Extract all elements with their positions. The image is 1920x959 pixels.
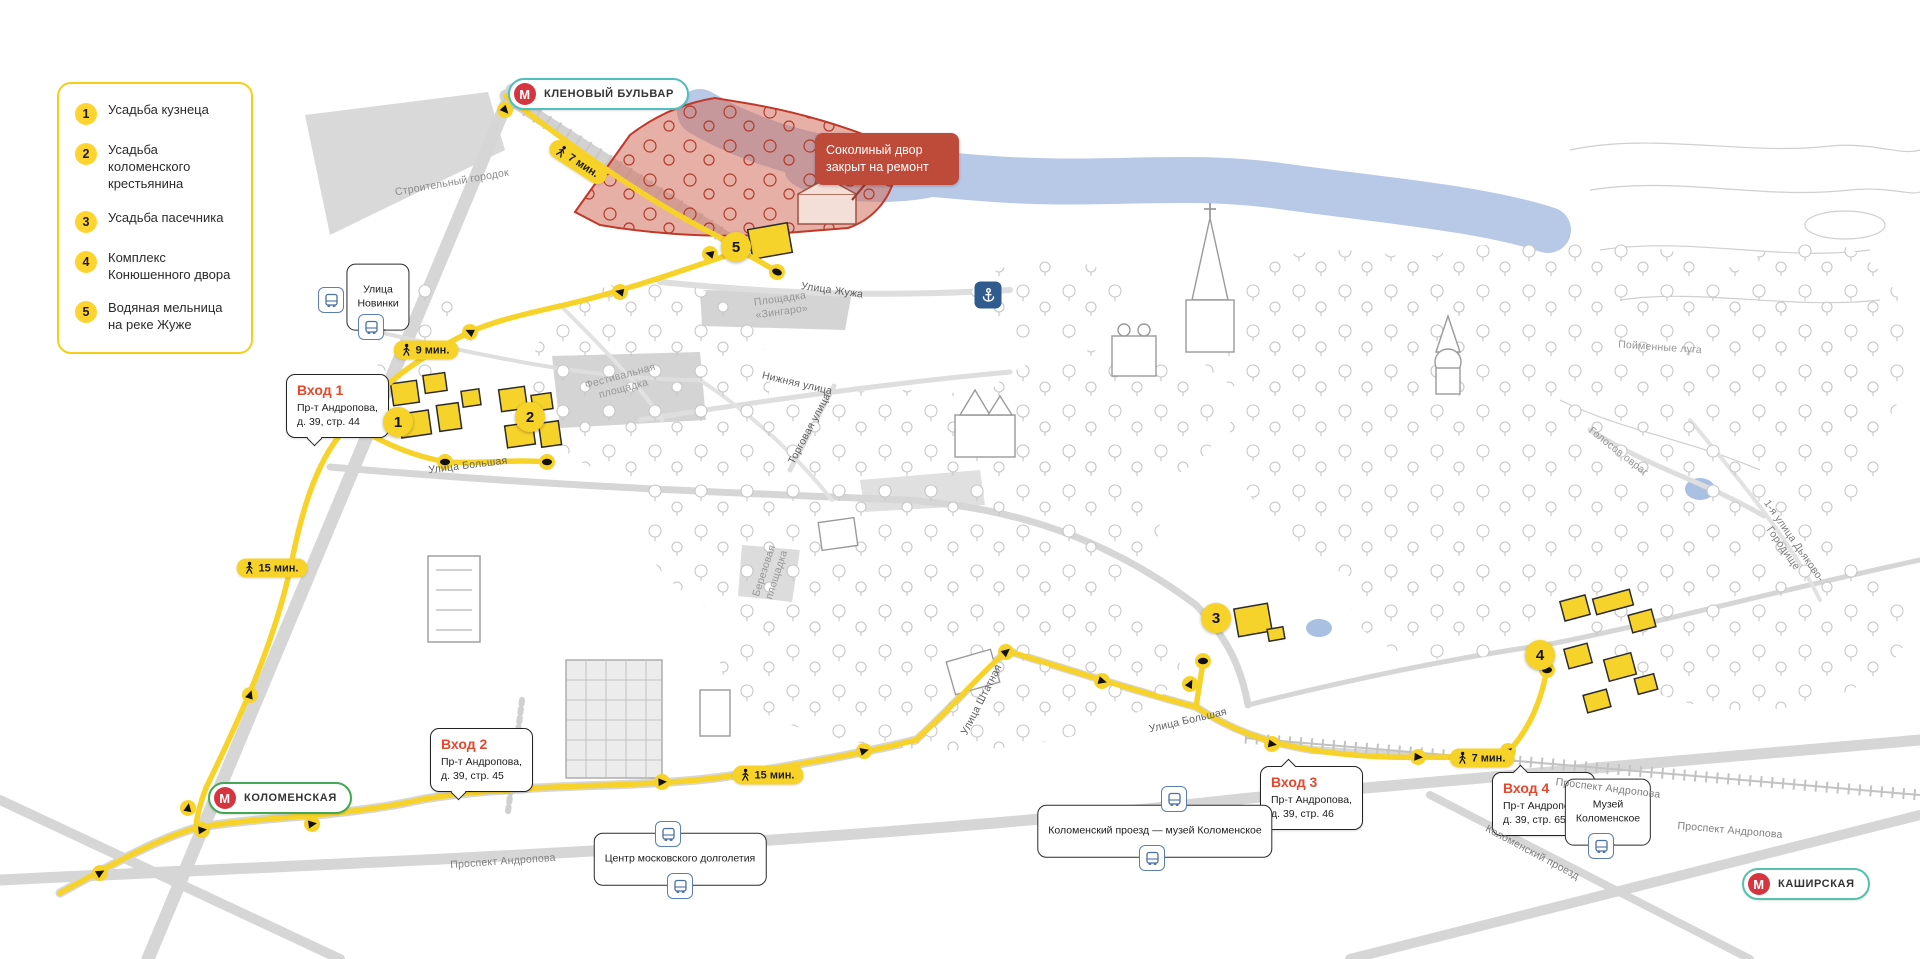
metro-m-icon: М (514, 83, 536, 105)
metro-station-name: КЛЕНОВЫЙ БУЛЬВАР (544, 88, 674, 100)
kolomenskoye-park-map: 1 Усадьба кузнеца 2 Усадьба коломенского… (0, 0, 1920, 959)
metro-m-icon: М (1748, 873, 1770, 895)
bus-stop-icon (1139, 845, 1165, 871)
entrance-address: Пр-т Андропова, д. 39, стр. 46 (1271, 793, 1352, 821)
entrance-title: Вход 2 (441, 736, 522, 752)
entrance-title: Вход 3 (1271, 774, 1352, 790)
legend-item: 4 Комплекс Конюшенного двора (75, 250, 237, 284)
legend-panel: 1 Усадьба кузнеца 2 Усадьба коломенского… (57, 82, 253, 354)
bus-stop-icon (358, 314, 384, 340)
bus-stop-icon (667, 873, 693, 899)
legend-item-label: Усадьба пасечника (108, 210, 223, 227)
map-marker-1: 1 (383, 407, 413, 437)
entrance-callout-2: Вход 2 Пр-т Андропова, д. 39, стр. 45 (430, 728, 533, 792)
walk-time-label: 15 мин. (259, 562, 299, 574)
legend-item-label: Усадьба коломенского крестьянина (108, 142, 237, 193)
legend-item-label: Усадьба кузнеца (108, 102, 209, 119)
walk-time-label: 7 мин. (1472, 752, 1506, 764)
legend-number-badge: 2 (75, 143, 97, 165)
legend-item: 1 Усадьба кузнеца (75, 102, 237, 125)
bus-stop-icon (1161, 786, 1187, 812)
walk-time-label: 15 мин. (755, 769, 795, 781)
walking-person-icon (553, 143, 569, 160)
metro-station-name: КАШИРСКАЯ (1778, 878, 1855, 890)
legend-number-badge: 1 (75, 103, 97, 125)
entrance-callout-3: Вход 3 Пр-т Андропова, д. 39, стр. 46 (1260, 766, 1363, 830)
bus-stop-icon (655, 821, 681, 847)
metro-badge-kashirskaya: М КАШИРСКАЯ (1742, 868, 1870, 900)
walk-time-badge: 15 мин. (733, 766, 804, 785)
legend-item: 5 Водяная мельница на реке Жуже (75, 300, 237, 334)
walk-time-badge: 7 мин. (1450, 749, 1515, 768)
walk-time-badge: 15 мин. (237, 559, 308, 578)
metro-m-icon: М (214, 787, 236, 809)
legend-item: 2 Усадьба коломенского крестьянина (75, 142, 237, 193)
bus-stop-icon (318, 287, 344, 313)
map-marker-3: 3 (1201, 603, 1231, 633)
map-marker-2: 2 (515, 402, 545, 432)
walking-person-icon (740, 769, 751, 782)
walking-person-icon (244, 562, 255, 575)
walk-time-badge: 9 мин. (394, 341, 459, 360)
metro-badge-klenovy-bulvar: М КЛЕНОВЫЙ БУЛЬВАР (508, 78, 689, 110)
entrance-address: Пр-т Андропова, д. 39, стр. 44 (297, 401, 378, 429)
legend-number-badge: 3 (75, 211, 97, 233)
legend-item-label: Водяная мельница на реке Жуже (108, 300, 237, 334)
legend-number-badge: 5 (75, 301, 97, 323)
metro-badge-kolomenskaya: М КОЛОМЕНСКАЯ (208, 782, 352, 814)
grid-building (566, 660, 662, 778)
bus-stop-icon (1588, 833, 1614, 859)
walking-person-icon (401, 344, 412, 357)
entrance-callout-1: Вход 1 Пр-т Андропова, д. 39, стр. 44 (286, 374, 389, 438)
map-marker-4: 4 (1525, 640, 1555, 670)
map-marker-5: 5 (721, 232, 751, 262)
walk-time-label: 9 мин. (416, 344, 450, 356)
closure-callout: Соколиный двор закрыт на ремонт (815, 133, 959, 185)
metro-station-name: КОЛОМЕНСКАЯ (244, 792, 337, 804)
entrance-title: Вход 1 (297, 382, 378, 398)
legend-number-badge: 4 (75, 251, 97, 273)
legend-item-label: Комплекс Конюшенного двора (108, 250, 237, 284)
walking-person-icon (1457, 752, 1468, 765)
entrance-address: Пр-т Андропова, д. 39, стр. 45 (441, 755, 522, 783)
anchor-pier-icon (975, 282, 1002, 309)
legend-item: 3 Усадьба пасечника (75, 210, 237, 233)
